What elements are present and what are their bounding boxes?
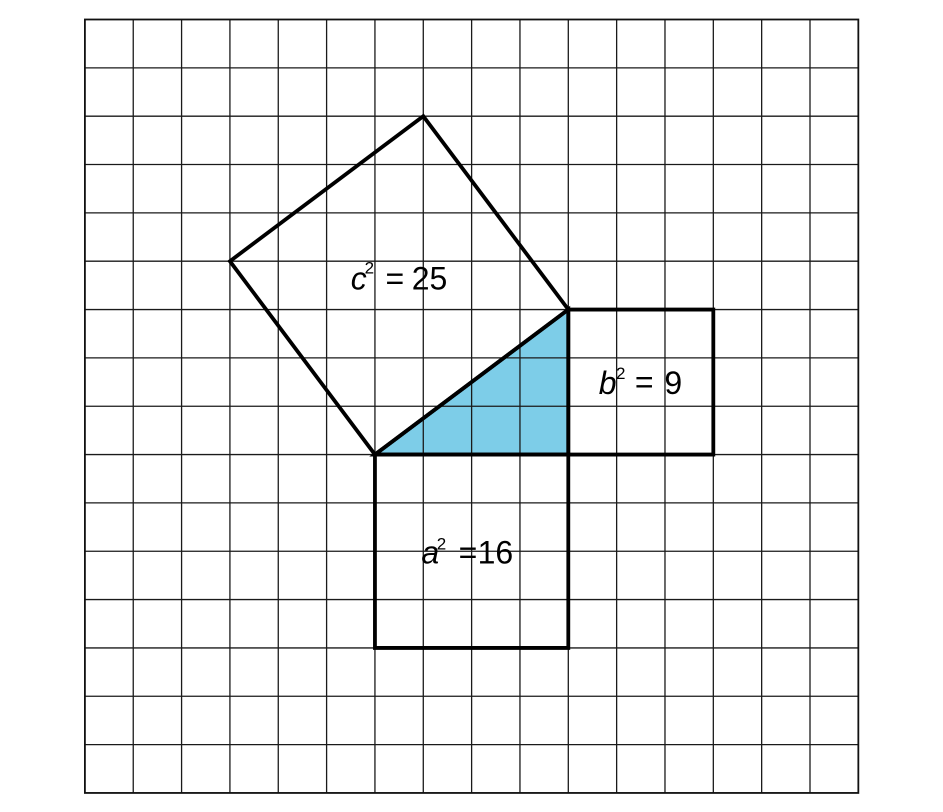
svg-text:2: 2 [616, 364, 625, 383]
svg-text:9: 9 [664, 365, 682, 401]
svg-text:b: b [599, 365, 617, 401]
svg-text:2: 2 [365, 258, 374, 277]
svg-text:2: 2 [437, 535, 446, 554]
svg-text:25: 25 [412, 261, 448, 297]
svg-text:=: = [635, 364, 654, 400]
svg-text:16: 16 [478, 535, 514, 571]
svg-text:=: = [459, 535, 478, 571]
svg-text:=: = [386, 261, 405, 297]
